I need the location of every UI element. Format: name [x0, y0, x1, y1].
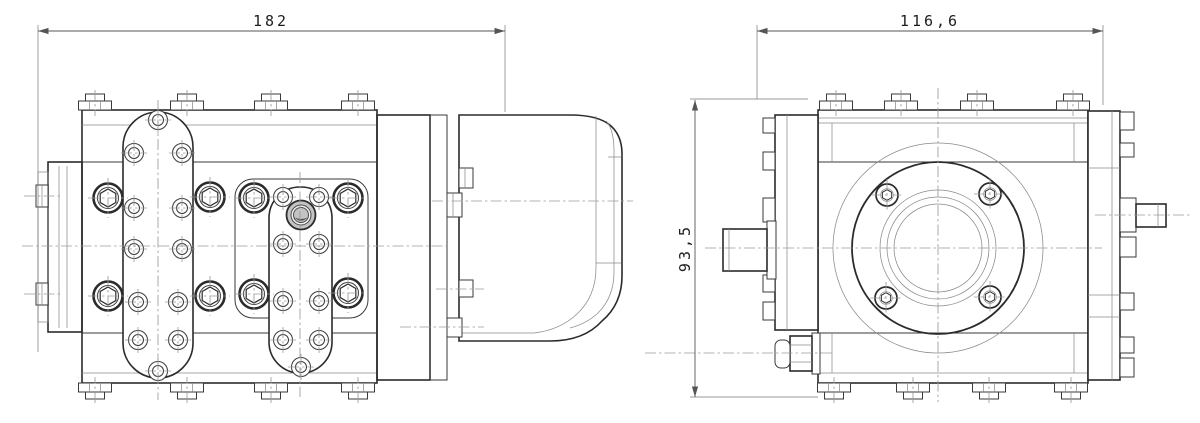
flange-screw	[974, 281, 1006, 313]
hex-bolt-side	[820, 90, 853, 116]
hex-bolt-side	[255, 90, 288, 116]
port-boss	[459, 280, 473, 297]
rear-block	[377, 115, 447, 380]
hex-bolt-side	[818, 377, 851, 403]
flange-screw	[870, 282, 902, 314]
housing-body	[818, 110, 1088, 383]
front-view	[645, 88, 1192, 403]
hex-bolt-side	[79, 377, 112, 403]
dimension-overall-width: 116,6	[757, 12, 1103, 105]
hex-bolt-side	[171, 377, 204, 403]
dimension-label-116-6: 116,6	[900, 12, 960, 30]
hex-bolt-side	[961, 90, 994, 116]
front-bottom-bolts	[818, 377, 1088, 403]
hex-socket-bolt	[190, 276, 230, 316]
stud-bolt	[763, 118, 775, 133]
stud-bolt	[763, 302, 775, 320]
dimension-label-182: 182	[253, 12, 289, 30]
hex-bolt-side	[171, 90, 204, 116]
hex-bolt-side	[342, 90, 375, 116]
top-bolts	[79, 90, 375, 116]
front-top-bolts	[820, 90, 1090, 116]
hex-socket-bolt	[88, 276, 128, 316]
hex-bolt-side	[973, 377, 1006, 403]
stud-bolt	[763, 152, 775, 170]
port-boss	[447, 193, 462, 217]
drain-plug	[775, 333, 820, 374]
hex-bolt-side	[342, 377, 375, 403]
hex-bolt-side	[1055, 377, 1088, 403]
hex-bolt-side	[897, 377, 930, 403]
stud-bolt	[1120, 293, 1134, 310]
flange-screw	[974, 178, 1006, 210]
right-plate	[1088, 111, 1136, 380]
stud-bolt	[763, 198, 775, 222]
hex-socket-bolt	[88, 178, 128, 218]
rear-housing	[447, 115, 622, 341]
bottom-bolts	[79, 377, 375, 403]
dimension-label-93-5: 93,5	[676, 224, 694, 272]
hex-bolt-side	[255, 377, 288, 403]
stud-bolt	[1120, 358, 1134, 377]
hex-bolt-side	[79, 90, 112, 116]
stud-bolt	[1120, 143, 1134, 157]
end-cover	[36, 162, 82, 332]
technical-drawing-canvas: 182 116,6 93,5	[0, 0, 1200, 423]
highlighted-plug-screw	[287, 201, 316, 230]
drive-shaft	[723, 221, 776, 279]
stud-bolt	[1120, 337, 1134, 353]
port-boss	[459, 168, 473, 188]
hex-socket-bolt	[190, 177, 230, 217]
side-view	[22, 90, 633, 403]
shaft-collar	[767, 221, 776, 279]
stud-bolt	[1120, 112, 1134, 130]
hex-bolt-side	[885, 90, 918, 116]
body-outline	[818, 110, 1088, 383]
port-boss	[447, 318, 462, 337]
technical-drawing: 182 116,6 93,5	[0, 0, 1200, 423]
hex-bolt-side	[1057, 90, 1090, 116]
stud-bolt	[1120, 237, 1136, 257]
